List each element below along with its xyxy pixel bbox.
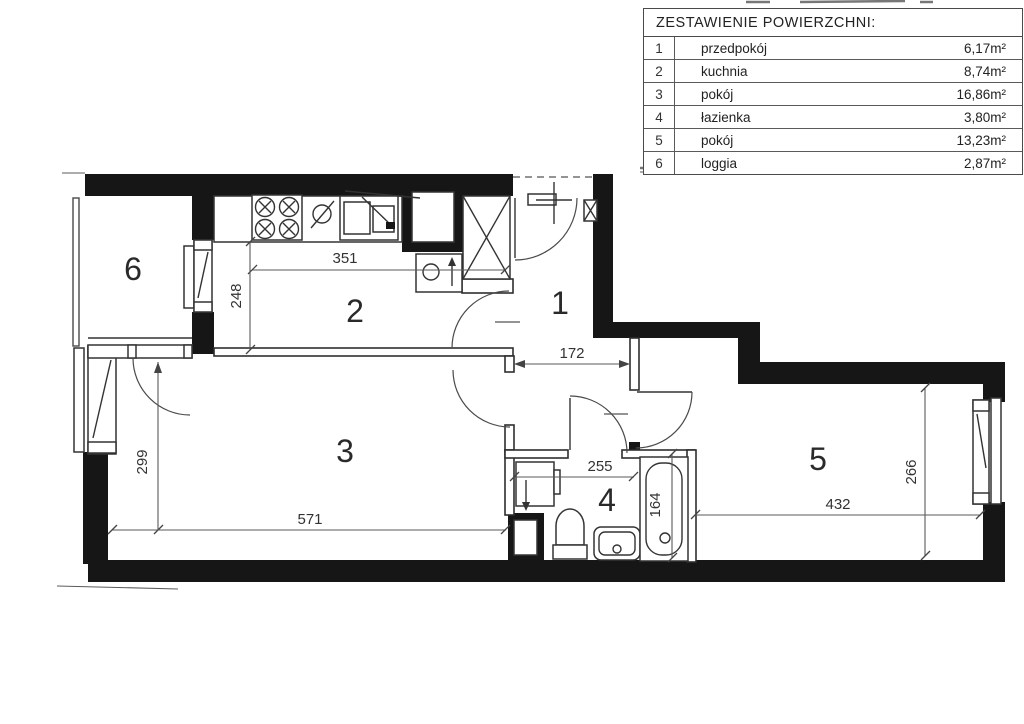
room-number: 2 — [644, 60, 675, 82]
partition-room3-corridor-a — [505, 356, 514, 372]
electric-box — [584, 200, 597, 221]
room-label-room3: 3 — [336, 433, 354, 469]
room-name: loggia — [675, 152, 964, 174]
dim-room3-width: 571 — [297, 511, 322, 528]
loggia-door-frame — [88, 338, 192, 358]
room-label-loggia: 6 — [124, 251, 142, 287]
room-label-hall: 1 — [551, 285, 569, 321]
room5-window — [973, 398, 1001, 504]
room-area: 3,80m² — [964, 106, 1022, 128]
room-number: 6 — [644, 152, 675, 174]
loggia-door-arc — [133, 358, 190, 415]
partition-room3-corridor-b — [505, 425, 514, 452]
table-row: 5 pokój 13,23m² — [644, 129, 1022, 152]
loggia-rail — [73, 198, 79, 346]
table-row: 1 przedpokój 6,17m² — [644, 37, 1022, 60]
room-name: łazienka — [675, 106, 964, 128]
table-row: 4 łazienka 3,80m² — [644, 106, 1022, 129]
dim-bath-width: 255 — [587, 458, 612, 475]
stove — [252, 195, 302, 240]
table-row: 2 kuchnia 8,74m² — [644, 60, 1022, 83]
room-number: 4 — [644, 106, 675, 128]
room-label-room5: 5 — [809, 441, 827, 477]
room-number: 5 — [644, 129, 675, 151]
wall-left — [83, 452, 108, 564]
room-number: 1 — [644, 37, 675, 59]
table-title: ZESTAWIENIE POWIERZCHNI: — [644, 9, 1022, 37]
partitions — [214, 279, 696, 562]
table-row: 3 pokój 16,86m² — [644, 83, 1022, 106]
dim-room5-depth: 266 — [903, 459, 920, 484]
washbasin — [594, 527, 640, 560]
partition-bath-top-left — [505, 450, 568, 458]
dim-room5-width: 432 — [825, 496, 850, 513]
wall-loggia-lower — [192, 312, 214, 354]
wall-hall-right — [593, 174, 613, 338]
floorplan-page: 1 2 3 4 5 6 351 248 172 299 571 255 164 … — [0, 0, 1024, 724]
partition-room5-west-upper — [630, 338, 639, 390]
bathroom-door — [570, 396, 627, 453]
room-area: 2,87m² — [964, 152, 1022, 174]
room-name: przedpokój — [675, 37, 964, 59]
table-row: 6 loggia 2,87m² — [644, 152, 1022, 174]
area-summary-table: ZESTAWIENIE POWIERZCHNI: 1 przedpokój 6,… — [643, 8, 1023, 175]
washing-machine — [516, 462, 560, 511]
room-number: 3 — [644, 83, 675, 105]
room-label-kitchen: 2 — [346, 293, 364, 329]
wardrobe — [463, 196, 510, 279]
room-name: pokój — [675, 129, 956, 151]
kitchen-window — [184, 240, 212, 312]
room3-window — [74, 346, 116, 454]
dim-kitchen-depth: 248 — [228, 283, 245, 308]
entrance-door — [513, 177, 593, 260]
room3-door-arc — [453, 370, 510, 427]
toilet — [553, 509, 587, 559]
room-area: 13,23m² — [956, 129, 1022, 151]
room-area: 6,17m² — [964, 37, 1022, 59]
room-name: pokój — [675, 83, 956, 105]
dim-room3-depth: 299 — [134, 449, 151, 474]
partition-bath-west — [505, 450, 514, 515]
partition-kitchen-room3 — [214, 348, 513, 356]
dim-tub-length: 164 — [647, 492, 664, 517]
wall-room5-top — [738, 362, 1005, 384]
wall-mid-horizontal — [593, 322, 760, 338]
room-name: kuchnia — [675, 60, 964, 82]
dim-kitchen-width: 351 — [332, 250, 357, 267]
wall-loggia-upper — [192, 196, 214, 240]
room-area: 16,86m² — [956, 83, 1022, 105]
fridge — [416, 254, 462, 292]
kitchen-door-arc — [452, 291, 509, 348]
room5-door — [636, 392, 692, 448]
room-area: 8,74m² — [964, 60, 1022, 82]
wall-bottom — [88, 560, 1005, 582]
room-label-bathroom: 4 — [598, 482, 616, 518]
dim-hall-width: 172 — [559, 345, 584, 362]
